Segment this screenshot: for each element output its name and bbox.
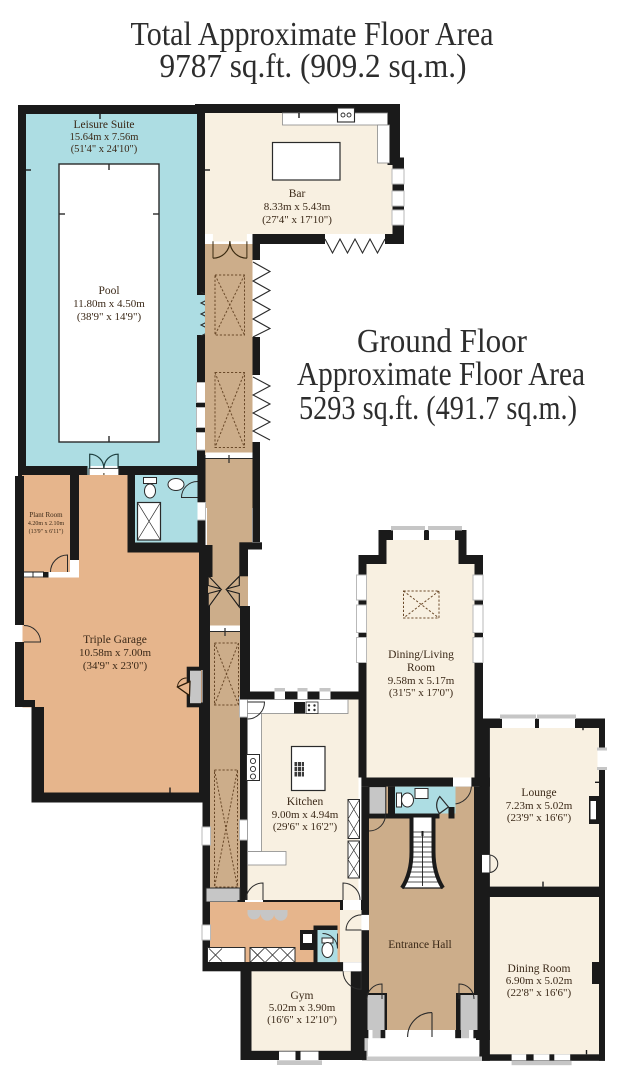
svg-text:Dining Room: Dining Room (508, 963, 571, 975)
svg-text:(29'6" x 16'2"): (29'6" x 16'2") (273, 821, 338, 833)
svg-text:9.00m x 4.94m: 9.00m x 4.94m (272, 809, 339, 821)
svg-text:7.23m x 5.02m: 7.23m x 5.02m (506, 800, 573, 812)
svg-text:10.58m x 7.00m: 10.58m x 7.00m (79, 647, 152, 659)
svg-text:6.90m x 5.02m: 6.90m x 5.02m (506, 975, 573, 987)
svg-text:Leisure Suite: Leisure Suite (74, 119, 135, 131)
svg-text:(38'9" x 14'9"): (38'9" x 14'9") (77, 311, 142, 323)
svg-text:(31'5" x 17'0"): (31'5" x 17'0") (389, 687, 454, 699)
svg-text:(23'9" x 16'6"): (23'9" x 16'6") (507, 812, 572, 824)
svg-text:Lounge: Lounge (521, 787, 556, 799)
svg-text:15.64m x 7.56m: 15.64m x 7.56m (70, 132, 139, 143)
svg-text:8.33m x 5.43m: 8.33m x 5.43m (264, 201, 331, 213)
svg-text:9787 sq.ft. (909.2 sq.m.): 9787 sq.ft. (909.2 sq.m.) (160, 48, 467, 85)
svg-text:Bar: Bar (289, 188, 306, 200)
svg-text:(16'6" x 12'10"): (16'6" x 12'10") (267, 1014, 337, 1026)
svg-text:Dining/Living: Dining/Living (388, 649, 454, 661)
svg-text:(13'9" x 6'11"): (13'9" x 6'11") (29, 528, 64, 535)
svg-text:Approximate Floor Area: Approximate Floor Area (297, 356, 585, 393)
svg-text:Plant Room: Plant Room (29, 511, 63, 519)
svg-text:Gym: Gym (291, 990, 314, 1002)
svg-text:Ground Floor: Ground Floor (357, 323, 528, 360)
svg-text:(22'8" x 16'6"): (22'8" x 16'6") (507, 987, 572, 999)
svg-text:(27'4" x 17'10"): (27'4" x 17'10") (262, 214, 332, 226)
svg-text:Entrance Hall: Entrance Hall (388, 939, 452, 951)
svg-text:9.58m x 5.17m: 9.58m x 5.17m (388, 675, 455, 687)
svg-text:4.20m x 2.10m: 4.20m x 2.10m (28, 521, 65, 527)
svg-text:5.02m x 3.90m: 5.02m x 3.90m (269, 1002, 336, 1014)
svg-text:Room: Room (407, 662, 435, 674)
svg-text:Triple Garage: Triple Garage (83, 634, 147, 646)
svg-text:11.80m x 4.50m: 11.80m x 4.50m (73, 298, 145, 310)
svg-text:(51'4" x 24'10"): (51'4" x 24'10") (71, 144, 138, 155)
svg-text:Kitchen: Kitchen (287, 796, 324, 808)
svg-text:Pool: Pool (98, 285, 119, 297)
svg-text:(34'9" x 23'0"): (34'9" x 23'0") (83, 660, 148, 672)
svg-text:5293 sq.ft. (491.7 sq.m.): 5293 sq.ft. (491.7 sq.m.) (299, 390, 577, 427)
